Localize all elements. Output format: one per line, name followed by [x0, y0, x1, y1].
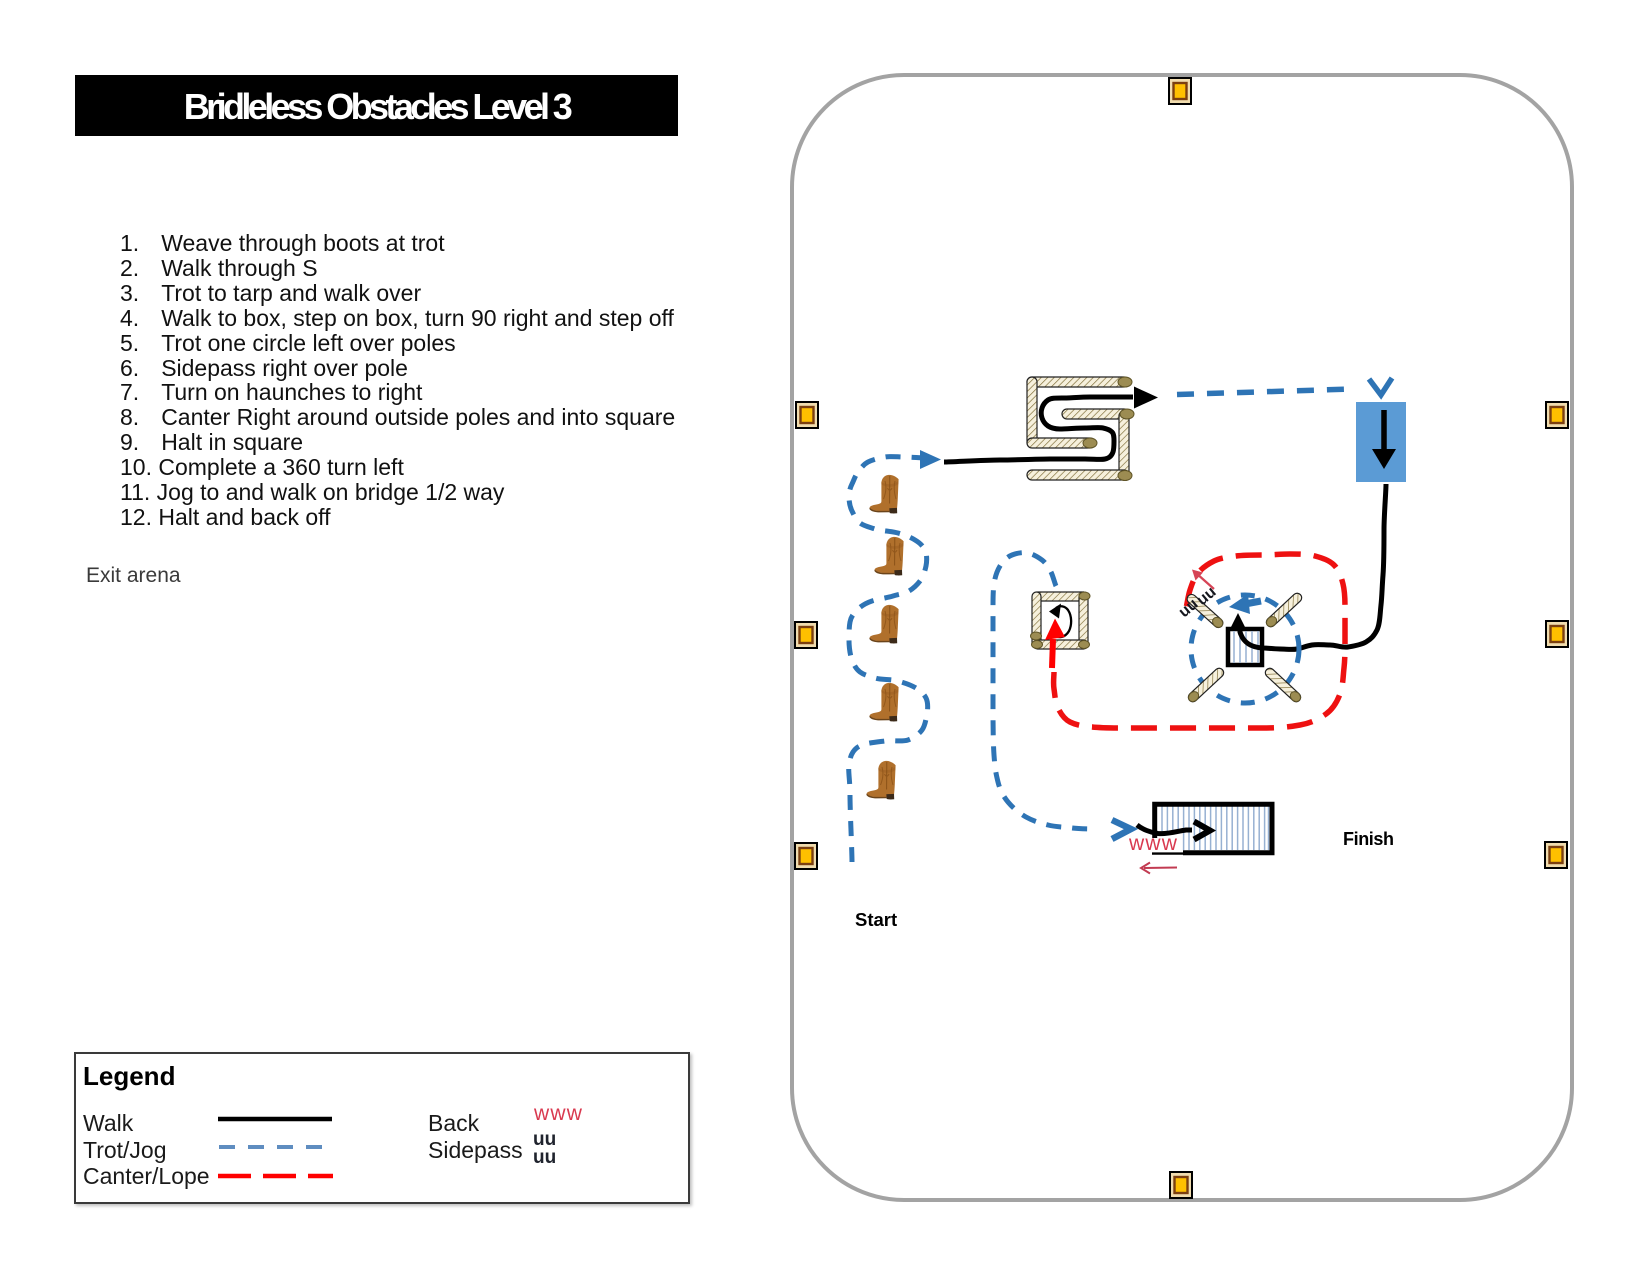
svg-text:www: www: [1128, 832, 1178, 855]
